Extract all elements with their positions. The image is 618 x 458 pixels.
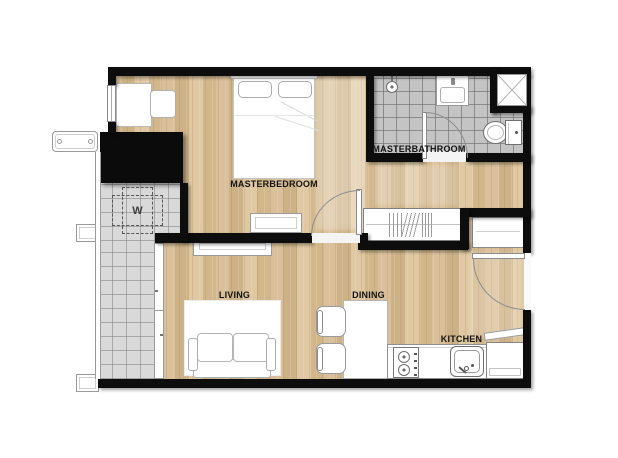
sliding-door-icon: [154, 243, 164, 379]
wall-bathroom-south-right: [466, 153, 531, 162]
dresser-icon: [250, 213, 302, 233]
sliding-door-divider: [155, 310, 163, 311]
room-label-masterbathroom: MASTERBATHROOM: [369, 144, 469, 154]
wall-right-lower: [523, 310, 531, 379]
wall-shaft-bottom: [490, 105, 531, 113]
sofa-arm: [266, 338, 276, 371]
concrete-ledge-block: [100, 132, 183, 183]
tv-console-top: [199, 243, 266, 250]
ac-condenser-icon: [52, 131, 98, 152]
wall-bathroom-south-left: [366, 153, 423, 162]
shaft-cross-icon: [498, 75, 526, 105]
hanging-clothes-icon: [389, 213, 402, 237]
stove-knobs: [414, 351, 417, 376]
balcony-railing: [95, 152, 101, 379]
hanging-clothes-icon: [422, 213, 433, 237]
entry-cabinet-icon: [472, 217, 524, 248]
room-label-masterbedroom: MASTERBEDROOM: [214, 179, 334, 189]
room-label-dining: DINING: [341, 290, 396, 300]
bed-icon: [233, 78, 315, 179]
wall-bedroom-south: [155, 233, 312, 243]
wall-left-lower: [108, 122, 116, 133]
pillow-icon: [238, 81, 272, 98]
chair-backrest: [317, 347, 323, 371]
dining-chair-icon: [316, 306, 346, 337]
bathroom-vanity-icon: [436, 75, 469, 106]
window-mullion: [111, 86, 112, 121]
wall-bottom: [98, 379, 531, 388]
sofa-cushion: [197, 333, 233, 362]
sliding-door-handle: [155, 290, 158, 292]
window-icon: [107, 85, 116, 122]
wall-balcony-divider: [180, 183, 188, 241]
wall-top: [108, 67, 531, 76]
stove-burner: [398, 364, 410, 376]
desk-chair-icon: [150, 90, 176, 118]
toilet-tank: [505, 120, 522, 145]
toilet-tank-line: [508, 123, 509, 144]
wall-entry-top: [460, 208, 531, 217]
ac-fan-left: [57, 139, 62, 144]
stove-burner: [398, 351, 410, 363]
stove-icon: [393, 347, 419, 378]
kitchen-sink-icon: [450, 346, 484, 377]
sink-drain: [471, 364, 474, 367]
chair-backrest: [317, 310, 323, 334]
desk-icon: [116, 83, 152, 127]
dresser-top-line: [255, 217, 297, 229]
sofa-arm: [188, 338, 198, 371]
vanity-faucet: [451, 78, 455, 85]
wall-entry-stub: [460, 208, 469, 249]
wall-left-upper: [108, 76, 116, 85]
toilet-flush-button: [515, 131, 518, 134]
sliding-door-handle: [160, 334, 163, 336]
ac-fan-right: [88, 139, 93, 144]
hanging-clothes-icon: [401, 213, 422, 237]
floor-plan: W: [0, 0, 618, 458]
entry-cabinet-shelf-line: [476, 231, 520, 232]
dining-chair-icon: [316, 343, 346, 374]
wall-wardrobe-south: [358, 241, 468, 250]
planter-rim: [79, 377, 96, 389]
service-shaft: [497, 74, 527, 106]
refrigerator-door: [489, 368, 521, 376]
sofa-cushion: [233, 333, 269, 362]
vanity-basin: [440, 87, 465, 103]
room-label-kitchen: KITCHEN: [434, 334, 489, 344]
toilet-seat: [487, 125, 504, 140]
wood-highlight: [374, 164, 458, 206]
shower-head-icon: [386, 81, 398, 93]
sheet-line: [234, 115, 314, 116]
planter-rim: [79, 227, 96, 239]
entry-door-threshold: [524, 253, 531, 310]
pillow-icon: [278, 81, 312, 98]
room-label-living: LIVING: [207, 290, 262, 300]
washer-label: W: [112, 195, 163, 226]
dining-table-icon: [343, 300, 388, 379]
refrigerator-icon: [486, 342, 524, 379]
wardrobe-icon: [363, 208, 463, 241]
